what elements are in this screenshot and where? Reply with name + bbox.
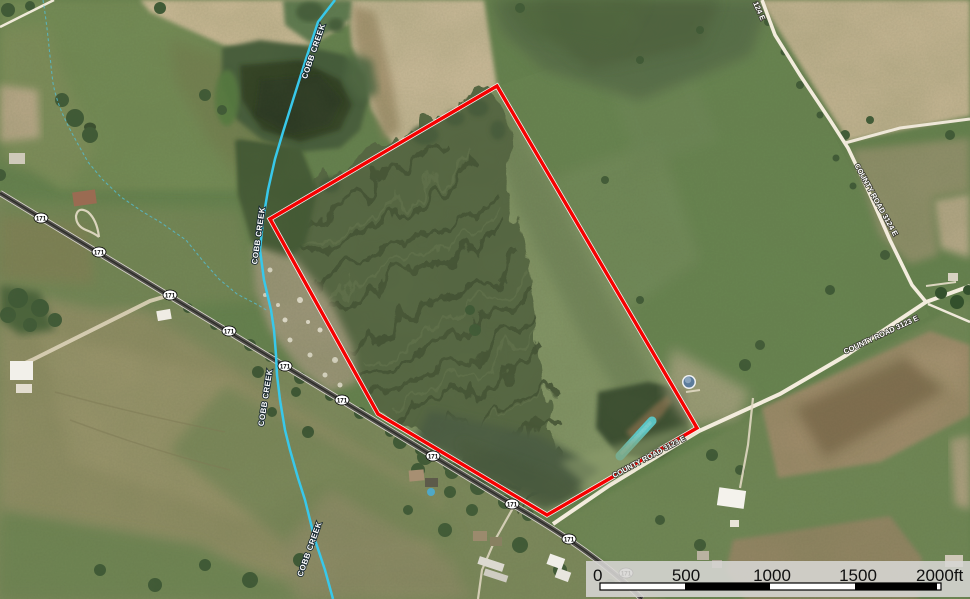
svg-text:2000ft: 2000ft: [916, 566, 964, 585]
svg-text:171: 171: [94, 249, 105, 256]
svg-text:500: 500: [672, 566, 700, 585]
svg-text:171: 171: [428, 453, 439, 460]
svg-text:1000: 1000: [753, 566, 791, 585]
svg-text:1500: 1500: [839, 566, 877, 585]
svg-text:171: 171: [165, 292, 176, 299]
svg-text:171: 171: [337, 397, 348, 404]
svg-text:171: 171: [36, 215, 47, 222]
svg-text:171: 171: [224, 328, 235, 335]
svg-text:171: 171: [564, 536, 575, 543]
svg-text:171: 171: [507, 501, 518, 508]
svg-text:0: 0: [593, 566, 602, 585]
svg-text:171: 171: [280, 363, 291, 370]
